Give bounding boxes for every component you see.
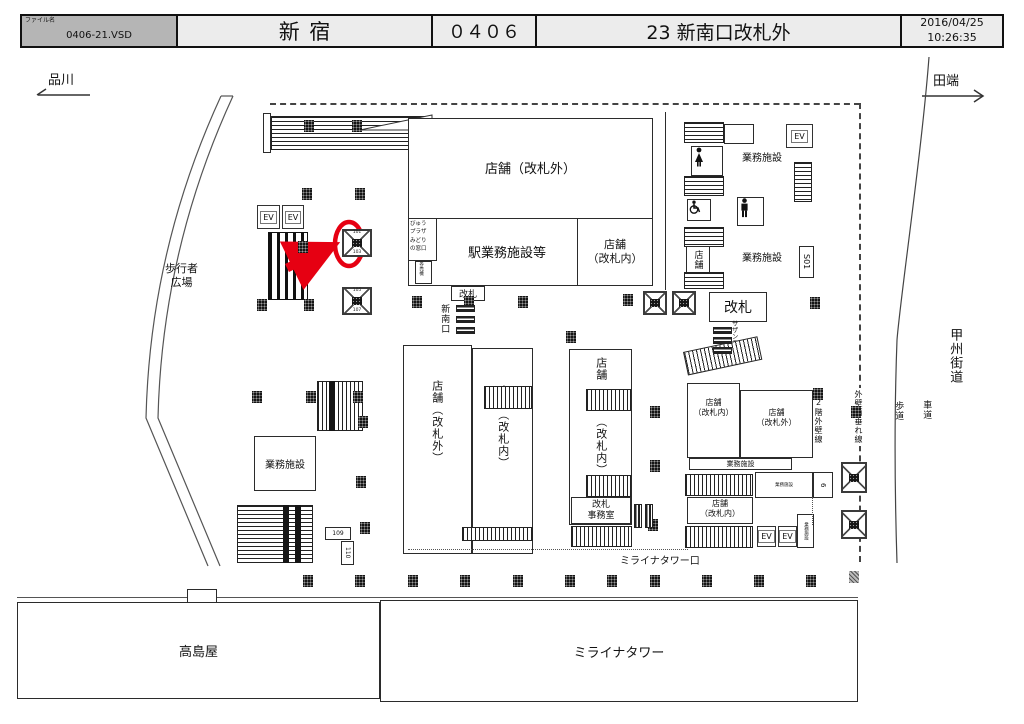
ticket-gate bbox=[713, 327, 732, 334]
signage-pillar bbox=[841, 462, 867, 493]
pillar bbox=[650, 406, 660, 418]
pillar bbox=[518, 296, 528, 308]
pillar bbox=[352, 120, 362, 132]
pillar bbox=[303, 575, 313, 587]
pillar bbox=[806, 575, 816, 587]
floorplan-page: ファイル名 0406-21.VSD 新宿 ０４０６ 23 新南口改札外 2016… bbox=[0, 0, 1024, 724]
pillar bbox=[460, 575, 470, 587]
pillar bbox=[358, 416, 368, 428]
signage-pillar: 105107 bbox=[342, 287, 372, 315]
pillar-number: 105 bbox=[344, 289, 370, 294]
signage-pillar bbox=[841, 510, 867, 539]
pillar bbox=[360, 522, 370, 534]
ticket-gate bbox=[645, 504, 653, 528]
pillar-number: 101 bbox=[344, 231, 370, 236]
pillar bbox=[566, 331, 576, 343]
pillar bbox=[565, 575, 575, 587]
pillar bbox=[851, 406, 861, 418]
pillar-core bbox=[849, 474, 859, 482]
pillar bbox=[813, 388, 823, 400]
pillar bbox=[353, 391, 363, 403]
pillar-core bbox=[679, 299, 689, 307]
pillar bbox=[356, 476, 366, 488]
ticket-gate bbox=[456, 327, 475, 334]
signage-pillar bbox=[672, 291, 696, 315]
pillar bbox=[304, 120, 314, 132]
pillar bbox=[355, 575, 365, 587]
pillar bbox=[810, 297, 820, 309]
pillar bbox=[607, 575, 617, 587]
ticket-gate bbox=[456, 305, 475, 312]
pillar-core bbox=[352, 297, 362, 305]
pillar bbox=[306, 391, 316, 403]
signage-pillar: 101103 bbox=[342, 229, 372, 257]
pillar bbox=[302, 188, 312, 200]
highlight-annotation bbox=[0, 0, 1024, 724]
pillar bbox=[754, 575, 764, 587]
pillar bbox=[304, 299, 314, 311]
pillar-hatched bbox=[849, 571, 859, 583]
pillar bbox=[408, 575, 418, 587]
pillar bbox=[412, 296, 422, 308]
pillar bbox=[623, 294, 633, 306]
pillar-core bbox=[849, 521, 859, 529]
pillar-core bbox=[352, 239, 362, 247]
pillar bbox=[252, 391, 262, 403]
pillar bbox=[298, 241, 308, 253]
pillar bbox=[513, 575, 523, 587]
pillar-number: 107 bbox=[344, 309, 370, 314]
ticket-gate bbox=[634, 504, 642, 528]
signage-pillar bbox=[643, 291, 667, 315]
pillar bbox=[650, 575, 660, 587]
pillar-number: 103 bbox=[344, 251, 370, 256]
pillar bbox=[257, 299, 267, 311]
pillar bbox=[650, 460, 660, 472]
pillar bbox=[702, 575, 712, 587]
pillar-core bbox=[650, 299, 660, 307]
pillar bbox=[355, 188, 365, 200]
ticket-gate bbox=[456, 316, 475, 323]
ticket-gate bbox=[713, 347, 732, 354]
ticket-gate bbox=[713, 337, 732, 344]
